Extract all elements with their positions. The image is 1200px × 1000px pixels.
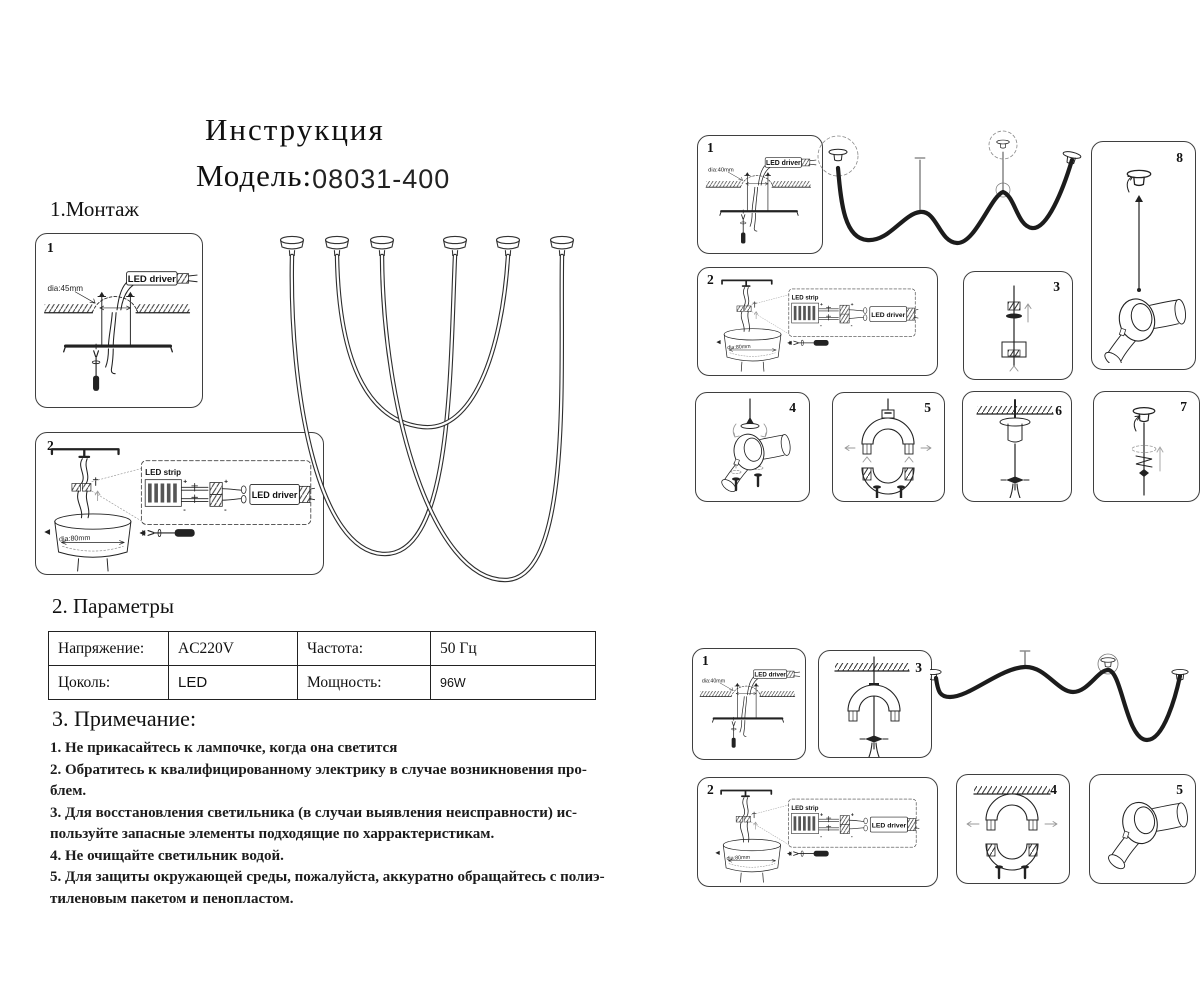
split-ring-art: [957, 778, 1067, 880]
panel-r7-wire-spring: 7: [1093, 391, 1200, 502]
panel-r1-ceiling-mount: 1 dia:40mm: [697, 135, 823, 254]
dia-label: dia:45mm: [47, 284, 83, 293]
wiring-art: [699, 779, 934, 883]
panel-b5-ring-clamp: 5: [1089, 774, 1196, 884]
note-line: 3. Для восстановления светильника (в слу…: [50, 803, 605, 825]
panel-l1-ceiling-mount: 1 dia:45mm: [35, 233, 203, 408]
panel-b4-split-ring-ceiling: 4: [956, 774, 1070, 884]
table-row: Цоколь: LED Мощность: 96W: [49, 666, 596, 700]
section-notes: 3. Примечание:: [52, 706, 196, 732]
params-table: Напряжение: AC220V Частота: 50 Гц Цоколь…: [48, 631, 596, 700]
note-line: 1. Не прикасайтесь к лампочке, когда она…: [50, 738, 605, 760]
note-line: 4. Не очищайте светильник водой.: [50, 846, 605, 868]
table-row: Напряжение: AC220V Частота: 50 Гц: [49, 632, 596, 666]
ring-clamp-art: [1090, 777, 1194, 877]
param-value: 50 Гц: [431, 632, 596, 666]
panel-r6-ceiling-canopy: 6: [962, 391, 1072, 502]
model-row: Модель: 08031-400: [196, 158, 450, 195]
note-line: тиленовым пакетом и пенопластом.: [50, 889, 605, 911]
section-montage: 1.Монтаж: [50, 197, 139, 222]
panel-r2-wiring: 2: [697, 267, 938, 376]
param-value: AC220V: [169, 632, 298, 666]
param-label: Напряжение:: [49, 632, 169, 666]
wavy-tube-drawing: [930, 640, 1200, 785]
pendant-lamp-drawing: [268, 222, 630, 594]
note-line: блем.: [50, 781, 605, 803]
model-label: Модель:: [196, 158, 312, 194]
wiring-art: [699, 269, 934, 372]
param-value: LED: [169, 666, 298, 700]
ceiling-mount-art: dia:40mm: [695, 659, 801, 753]
model-number: 08031-400: [312, 164, 450, 195]
param-label: Частота:: [298, 632, 431, 666]
note-line: пользуйте запасные элементы подходящие п…: [50, 824, 605, 846]
ceiling-mount-art: dia:45mm: [37, 254, 199, 400]
param-label: Мощность:: [298, 666, 431, 700]
wire-spring-art: [1094, 395, 1198, 499]
note-line: 5. Для защиты окружающей среды, пожалуйс…: [50, 867, 605, 889]
ring-clamp-art: [696, 396, 808, 496]
arch-mount-art: [819, 653, 931, 757]
panel-r8-hang-tube: 8: [1091, 141, 1196, 370]
dia-label: dia:40mm: [702, 678, 726, 684]
panel-b3-arch-mount: 3: [818, 650, 932, 758]
param-label: Цоколь:: [49, 666, 169, 700]
ceiling-mount-art: dia:40mm: [700, 146, 818, 249]
param-value: 96W: [431, 666, 596, 700]
wire-fitting-art: [964, 278, 1072, 374]
instruction-page: LED driver: [0, 0, 1200, 1000]
ceiling-canopy-art: [963, 396, 1071, 498]
panel-r4-ring-clamp: 4: [695, 392, 810, 502]
dia-label: dia:40mm: [708, 167, 734, 173]
panel-r3-wire-fitting: 3: [963, 271, 1073, 380]
panel-b2-wiring: 2: [697, 777, 938, 887]
panel-r5-split-ring: 5: [832, 392, 945, 502]
panel-b1-ceiling-mount: 1 dia:40mm: [692, 648, 806, 760]
split-ring-art: [833, 396, 943, 498]
page-title: Инструкция: [205, 112, 385, 148]
note-line: 2. Обратитесь к квалифицированному элект…: [50, 760, 605, 782]
hang-tube-art: [1093, 148, 1193, 363]
notes-list: 1. Не прикасайтесь к лампочке, когда она…: [50, 738, 605, 910]
section-params: 2. Параметры: [52, 594, 174, 619]
